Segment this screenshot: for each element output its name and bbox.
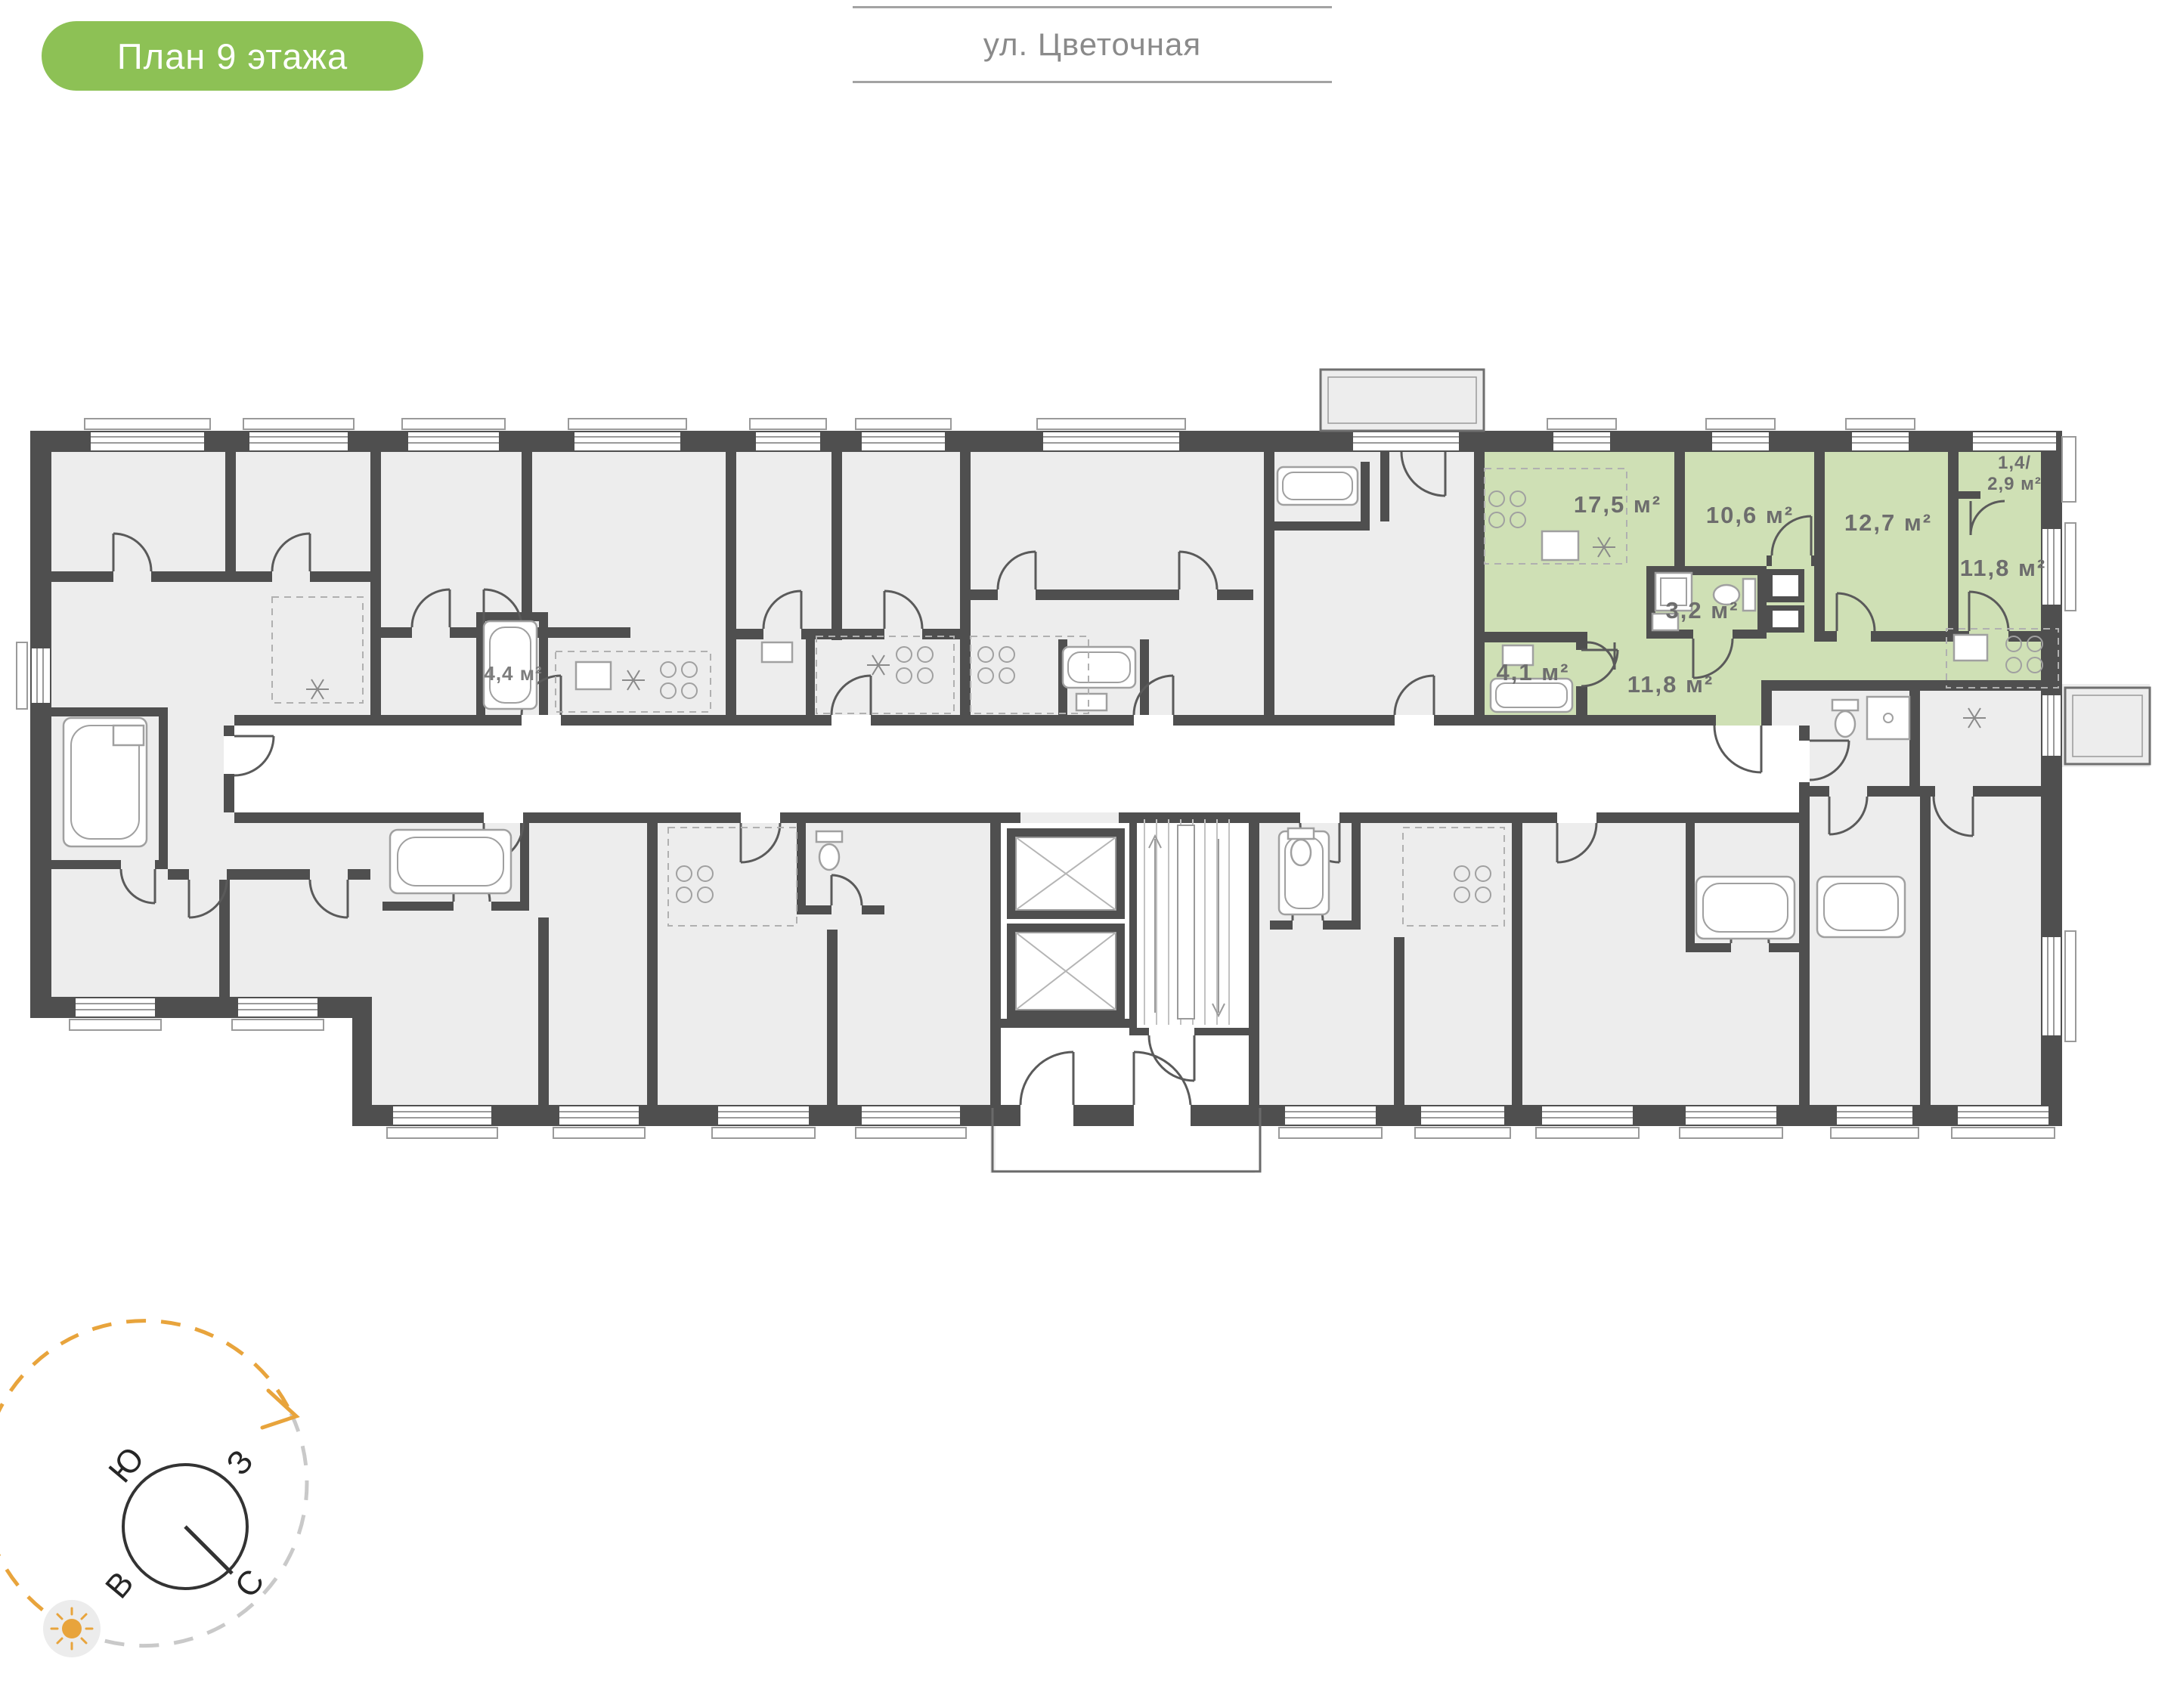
green-balcony-outer-frame	[2062, 437, 2076, 502]
room-area-label-bathroom2: 4,1 м²	[1497, 659, 1570, 685]
sun-icon	[51, 1608, 92, 1649]
room-area-label-balcony-line1: 1,4/	[1998, 453, 2031, 473]
floor-plan-svg: 17,5 м² 10,6 м² 12,7 м² 11,8 м² 3,2 м² 4…	[0, 0, 2177, 1708]
bathtub	[390, 830, 511, 893]
toilet	[1832, 700, 1858, 737]
room-area-label-bedroom1: 10,6 м²	[1706, 502, 1794, 528]
bathtub	[1817, 877, 1905, 937]
room-area-label-balcony-line2: 2,9 м²	[1987, 474, 2042, 494]
bay-window-floor	[2062, 684, 2150, 767]
shower	[1867, 697, 1909, 739]
corridor-floor	[234, 726, 1810, 812]
room-area-label-living: 17,5 м²	[1574, 491, 1661, 518]
bathtub	[1063, 647, 1135, 688]
compass-letter-north: С	[228, 1562, 271, 1604]
compass-letter-west: З	[219, 1443, 261, 1482]
staircase	[1144, 819, 1229, 1025]
toilet	[1288, 828, 1314, 865]
room-area-label-hallway: 11,8 м²	[1627, 671, 1714, 698]
building-floors	[30, 370, 2150, 1173]
room-area-label-bathroom: 3,2 м²	[1666, 597, 1739, 623]
room-area-label-bedroom3: 11,8 м²	[1960, 555, 2047, 581]
elevator-core	[1007, 828, 1125, 1019]
room-area-label-bedroom2: 12,7 м²	[1844, 509, 1932, 536]
top-balcony-floor	[1321, 370, 1484, 431]
compass-letter-east: В	[98, 1564, 141, 1605]
bathtub	[1696, 877, 1795, 939]
toilet	[816, 831, 842, 870]
compass: Ю З В С	[0, 1321, 307, 1657]
neighbor-bathroom-area-label: 4,4 м²	[484, 662, 542, 685]
bathtub	[1277, 467, 1358, 505]
